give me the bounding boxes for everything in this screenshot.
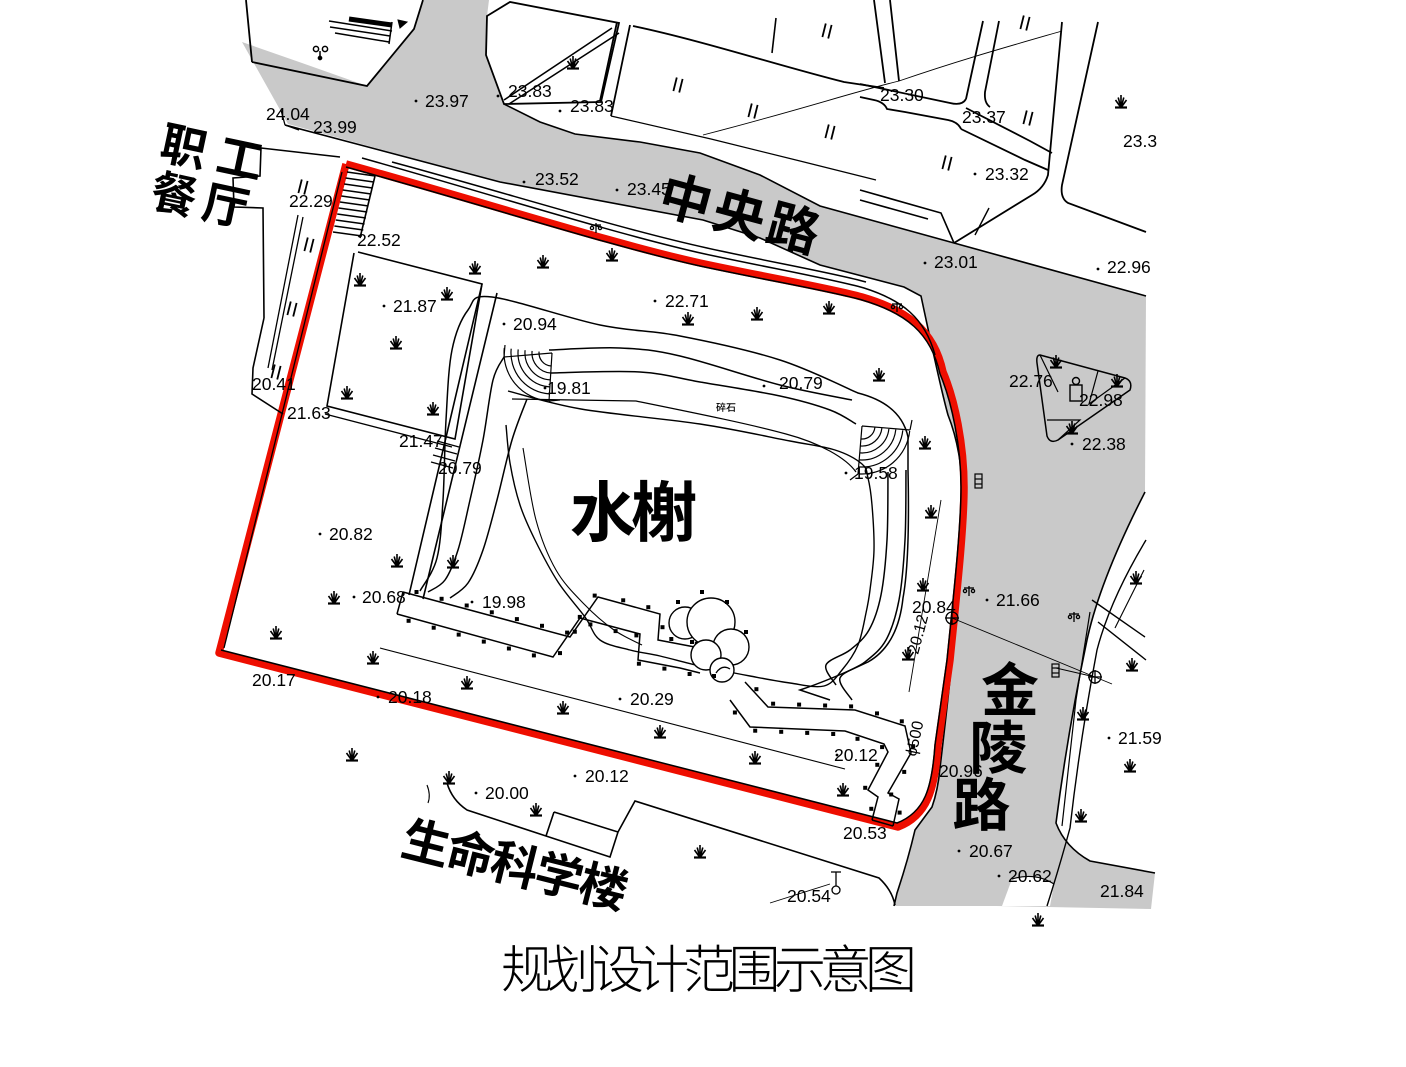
svg-text:22.38: 22.38 [1082, 434, 1126, 454]
svg-text:20.53: 20.53 [843, 823, 887, 843]
svg-text:20.41: 20.41 [252, 374, 296, 394]
svg-text:23.99: 23.99 [313, 117, 357, 137]
svg-text:23.3: 23.3 [1123, 131, 1157, 151]
svg-text:23.37: 23.37 [962, 107, 1006, 127]
svg-text:24.04: 24.04 [266, 104, 310, 124]
svg-text:21.84: 21.84 [1100, 881, 1144, 901]
svg-text:23.32: 23.32 [985, 164, 1029, 184]
svg-text:20.62: 20.62 [1008, 866, 1052, 886]
svg-text:22.76: 22.76 [1009, 371, 1053, 391]
svg-text:22.29: 22.29 [289, 191, 333, 211]
svg-text:20.79: 20.79 [779, 373, 823, 393]
svg-text:21.47: 21.47 [399, 431, 443, 451]
svg-text:20.82: 20.82 [329, 524, 373, 544]
svg-text:20.54: 20.54 [787, 886, 831, 906]
svg-text:20.67: 20.67 [969, 841, 1013, 861]
svg-text:19.98: 19.98 [482, 592, 526, 612]
svg-text:22.96: 22.96 [1107, 257, 1151, 277]
svg-text:23.97: 23.97 [425, 91, 469, 111]
svg-text:21.66: 21.66 [996, 590, 1040, 610]
svg-text:23.30: 23.30 [880, 85, 924, 105]
svg-text:22.52: 22.52 [357, 230, 401, 250]
svg-text:20.17: 20.17 [252, 670, 296, 690]
svg-text:20.68: 20.68 [362, 587, 406, 607]
svg-text:20.29: 20.29 [630, 689, 674, 709]
svg-text:23.01: 23.01 [934, 252, 978, 272]
svg-text:23.52: 23.52 [535, 169, 579, 189]
svg-text:20.00: 20.00 [485, 783, 529, 803]
svg-text:19.81: 19.81 [547, 378, 591, 398]
svg-text:23.45: 23.45 [627, 179, 671, 199]
svg-text:23.83: 23.83 [508, 81, 552, 101]
svg-text:20.18: 20.18 [388, 687, 432, 707]
svg-text:22.98: 22.98 [1079, 390, 1123, 410]
svg-text:23.83: 23.83 [570, 96, 614, 116]
svg-text:20.79: 20.79 [438, 458, 482, 478]
svg-text:21.87: 21.87 [393, 296, 437, 316]
svg-text:20.12: 20.12 [834, 745, 878, 765]
svg-text:22.71: 22.71 [665, 291, 709, 311]
svg-text:20.94: 20.94 [513, 314, 557, 334]
svg-text:21.63: 21.63 [287, 403, 331, 423]
svg-text:20.12: 20.12 [585, 766, 629, 786]
svg-text:19.58: 19.58 [854, 463, 898, 483]
svg-text:21.59: 21.59 [1118, 728, 1162, 748]
